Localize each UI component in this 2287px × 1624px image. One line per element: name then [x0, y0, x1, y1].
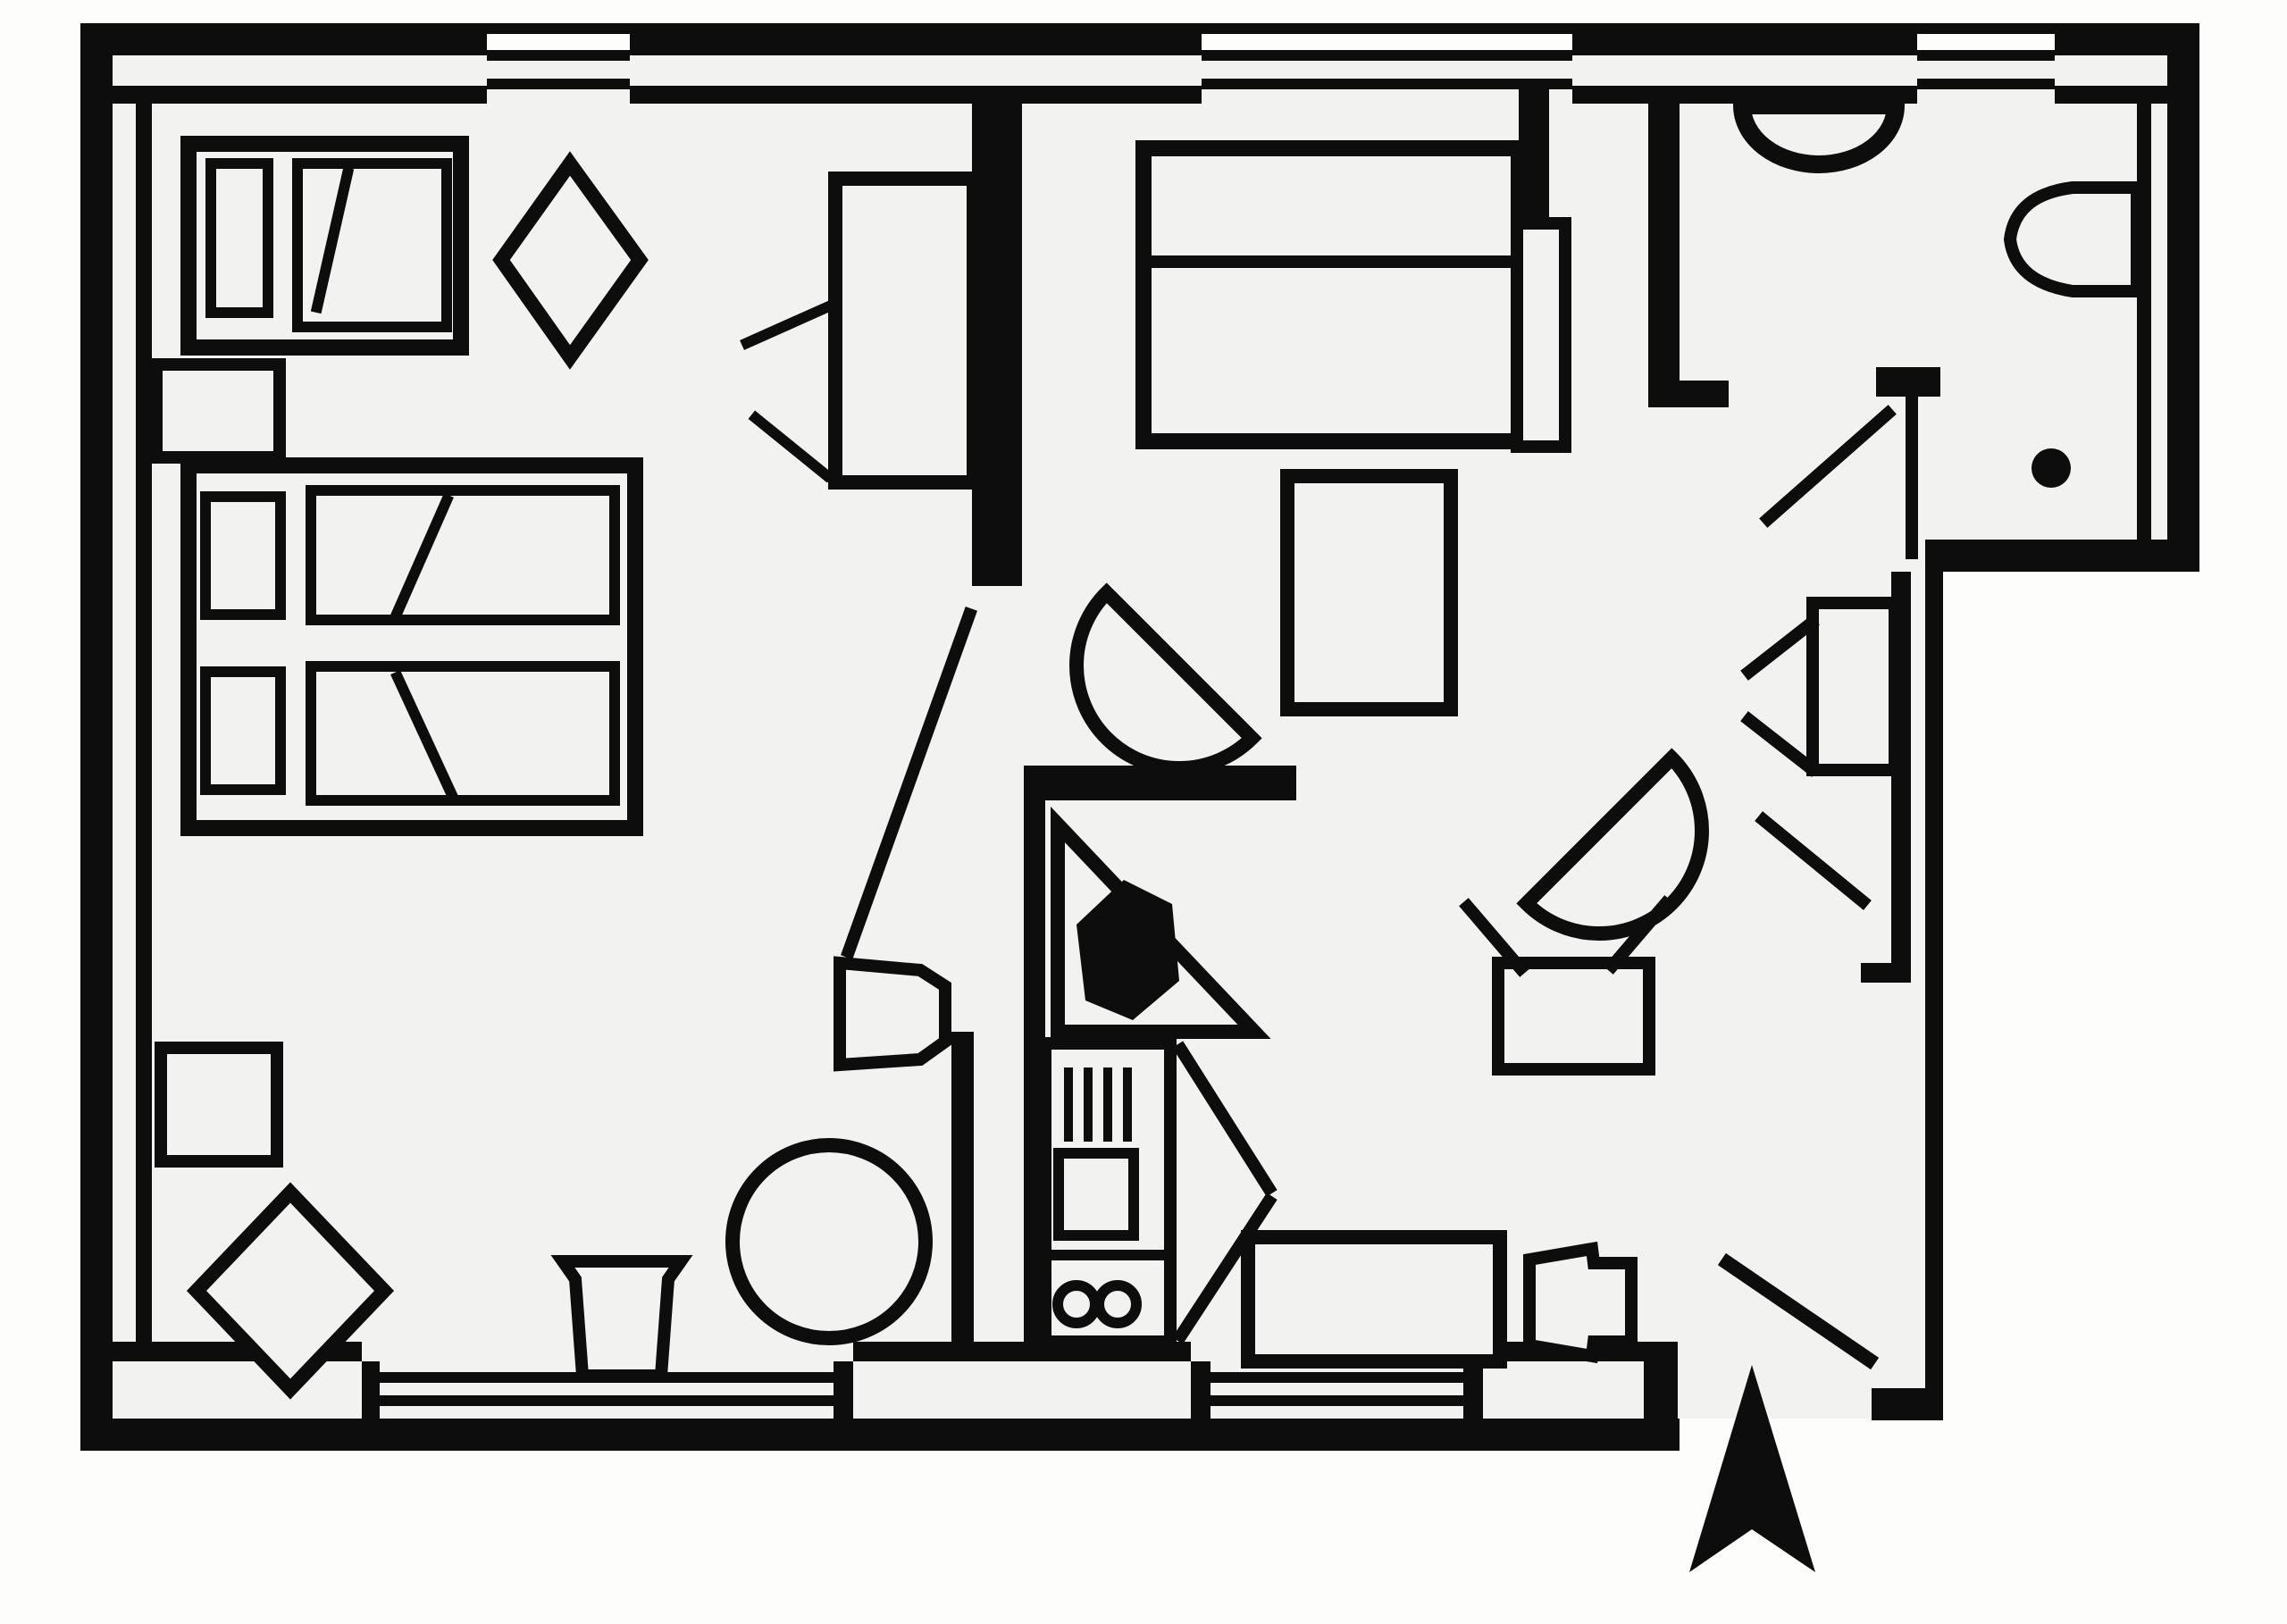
- toilet: [2010, 188, 2137, 291]
- wall-bathroom-left: [1648, 86, 1680, 407]
- window-joint-3: [1191, 1361, 1211, 1419]
- kitchen-sink: [1059, 1153, 1134, 1235]
- double-bed-pillow-2: [205, 672, 281, 790]
- nightstand-upper: [156, 364, 280, 457]
- double-bed-blanket-2: [311, 666, 615, 800]
- sofa: [1143, 148, 1519, 441]
- window-joint-1: [362, 1361, 380, 1419]
- wall-hall-right-inner-foot: [1861, 963, 1911, 983]
- nightstand-lower: [161, 1048, 277, 1161]
- wall-bathroom-left-foot: [1648, 381, 1729, 407]
- double-bed-pillow-1: [205, 497, 281, 615]
- planter-pot: [563, 1261, 681, 1376]
- bedroom-top-window-line-3: [487, 79, 630, 89]
- wall-top-inner-2: [630, 86, 1202, 104]
- floor-plan-page: [0, 0, 2287, 1624]
- apartment-floor-plan: [0, 0, 2287, 1624]
- round-table: [733, 1145, 926, 1338]
- bathroom-window-line-3: [1917, 79, 2055, 89]
- hall-closet: [1813, 603, 1895, 770]
- hall-duct: [1517, 223, 1565, 447]
- bedroom-top-window-line-2: [487, 50, 630, 61]
- double-bed-blanket-1: [311, 490, 615, 620]
- dining-chair-right: [1529, 1249, 1631, 1356]
- living-room-window-line-1: [1202, 23, 1572, 34]
- wall-hall-right-outer: [1925, 540, 1943, 1420]
- stove-burner-1: [1058, 1285, 1095, 1323]
- living-room-window-line-3: [1202, 79, 1572, 89]
- wall-bottom-outer: [80, 1419, 1680, 1451]
- dining-chair-top-seat: [1498, 963, 1649, 1069]
- wall-left-outer: [80, 23, 113, 1451]
- wardrobe: [835, 179, 974, 482]
- bedroom-top-window-line-1: [487, 23, 630, 34]
- kitchen-window-line-2: [1191, 1395, 1483, 1406]
- living-room-window-line-2: [1202, 50, 1572, 61]
- window-joint-2: [834, 1361, 853, 1419]
- bedroom-bottom-window-line-2: [362, 1395, 853, 1406]
- dining-table: [1248, 1237, 1500, 1361]
- bathroom-window-line-2: [1917, 50, 2055, 61]
- wall-top-inner-4: [2055, 86, 2169, 104]
- tub-chair-bedroom: [840, 963, 945, 1065]
- wash-basin: [1742, 105, 1896, 164]
- wall-top-outer-3: [1572, 23, 1917, 55]
- wall-top-inner-1: [111, 86, 487, 104]
- wall-right-bathroom-outer: [2167, 23, 2199, 572]
- floor-drain-dot: [2031, 448, 2071, 488]
- stove-burner-2: [1099, 1285, 1136, 1323]
- wall-bedroom-dining-divider: [951, 1032, 974, 1342]
- kitchen-window-line-1: [1191, 1372, 1483, 1383]
- wall-left-inner: [136, 86, 152, 1342]
- wall-top-outer-1: [80, 23, 487, 55]
- single-bed-pillow: [211, 163, 268, 313]
- wall-bathroom-bottom: [1925, 540, 2199, 572]
- window-joint-4: [1463, 1361, 1483, 1419]
- bathroom-window-line-1: [1917, 23, 2055, 34]
- coffee-table: [1287, 476, 1451, 709]
- wall-right-bathroom-inner: [2137, 86, 2151, 543]
- wall-top-outer-2: [630, 23, 1202, 55]
- wall-entrance-cap: [1872, 1388, 1943, 1420]
